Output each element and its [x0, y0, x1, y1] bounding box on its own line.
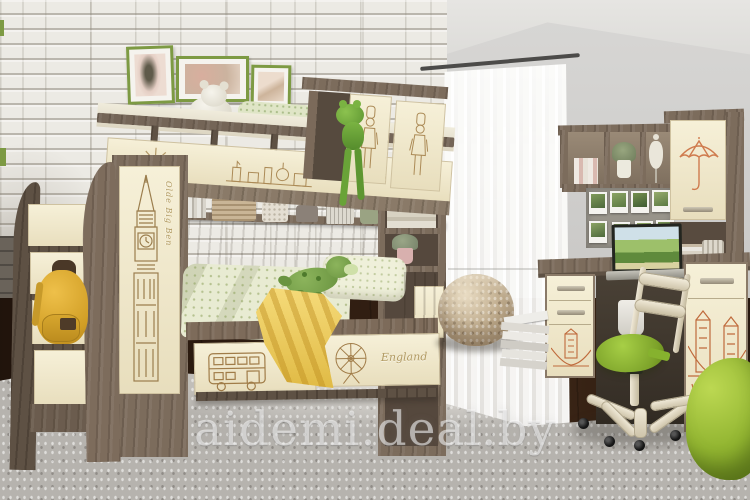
- overhead-cabinet-door: [390, 100, 446, 191]
- polaroid-photo: [589, 221, 607, 243]
- hutch-divider: [604, 132, 610, 188]
- drawer-handle: [557, 286, 585, 291]
- kids-room-photo: London: [0, 0, 750, 500]
- potted-plant: [612, 142, 636, 184]
- big-ben-sketch-icon: [126, 173, 166, 387]
- door-handle: [683, 207, 713, 212]
- bed-drawer-england: England: [318, 333, 441, 387]
- polaroid-photo: [631, 191, 649, 213]
- wardrobe-script-label: Olde Big Ben: [164, 181, 173, 246]
- guard-sketch-icon: [406, 110, 433, 181]
- polaroid-photo: [589, 192, 607, 214]
- polaroid-photo: [652, 190, 670, 212]
- hutch-door-umbrella: [670, 120, 726, 220]
- drawer-handle: [700, 278, 734, 284]
- england-label: England: [381, 350, 428, 364]
- hutch-side: [560, 130, 568, 188]
- frame-edge-mid-icon: [0, 148, 6, 166]
- london-bus-sketch-icon: [205, 349, 270, 392]
- chair-gas-lift: [630, 372, 639, 406]
- laptop-screen: [615, 226, 680, 269]
- skyline-sketch-icon: [224, 155, 316, 189]
- hutch-divider: [640, 132, 646, 188]
- frame-edge-top-icon: [0, 20, 4, 36]
- picture-art: [258, 72, 285, 101]
- picture-art: [134, 53, 166, 96]
- floor-book-stack: [498, 312, 555, 370]
- cosmetic-bottles: [574, 158, 598, 184]
- polaroid-photo: [610, 191, 628, 213]
- ferris-wheel-sketch-icon: [329, 339, 374, 386]
- bridge-sketch-icon: [551, 328, 591, 374]
- drawer-handle: [557, 310, 585, 315]
- stair-step-front: [28, 204, 86, 248]
- lace-box: [262, 202, 288, 222]
- yellow-backpack: [34, 258, 92, 354]
- small-purse: [296, 205, 318, 222]
- watermark-text: aidemi.deal.by: [0, 402, 750, 457]
- umbrella-sketch-icon: [676, 133, 722, 195]
- mannequin-figurine: [648, 134, 664, 184]
- wardrobe-door: Olde Big Ben: [119, 166, 180, 394]
- column-shelf-board: [384, 228, 440, 234]
- frog-plush: [330, 104, 376, 214]
